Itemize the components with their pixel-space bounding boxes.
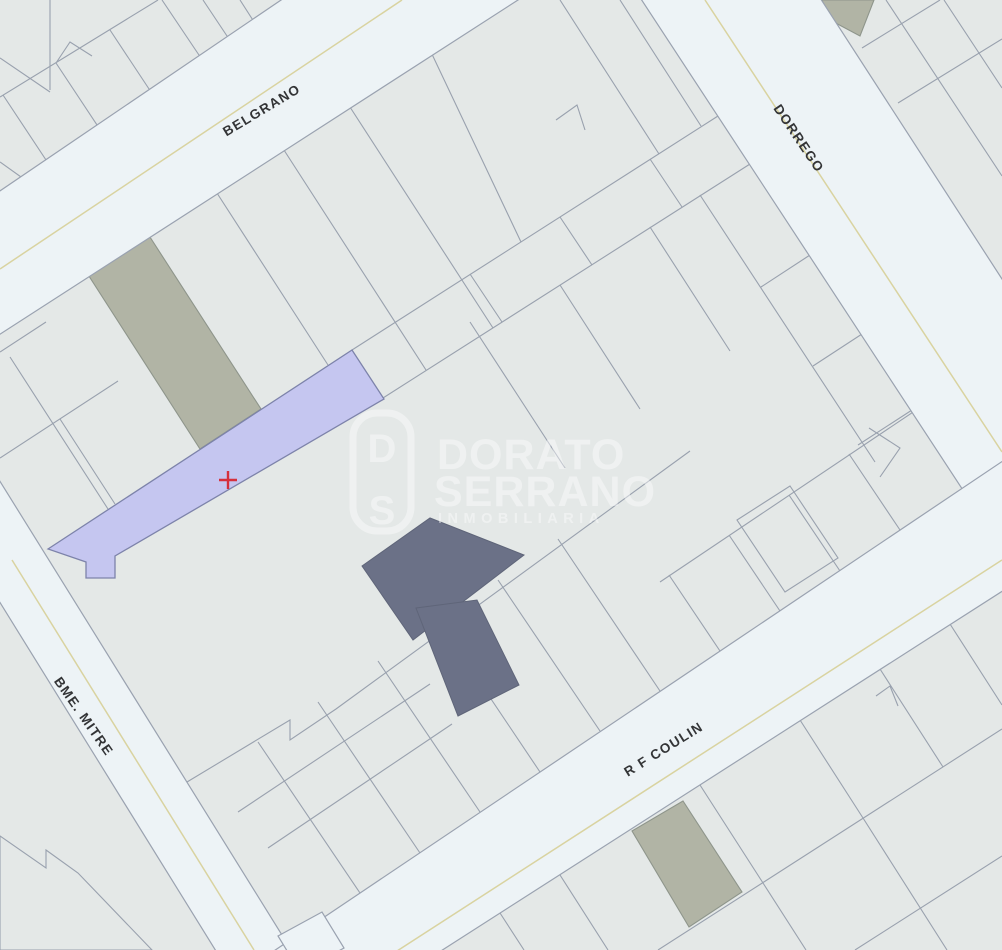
map-canvas[interactable]: BELGRANO DORREGO BME. MITRE R F COULIN D… xyxy=(0,0,1002,950)
watermark-line2: SERRANO xyxy=(434,468,656,516)
watermark-logo-s: S xyxy=(369,489,396,533)
watermark-logo-d: D xyxy=(368,427,397,471)
map-viewport: BELGRANO DORREGO BME. MITRE R F COULIN D… xyxy=(0,0,1002,950)
watermark-line3: INMOBILIARIA xyxy=(438,511,605,527)
